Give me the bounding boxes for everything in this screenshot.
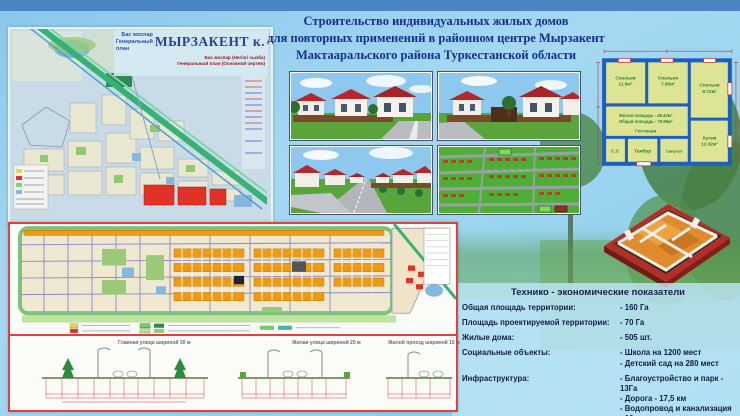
room-bedroom2-area: 7.95м² — [661, 82, 676, 87]
indicator-label: Социальные объекты: — [462, 348, 620, 368]
master-plan-panel: Бас жоспар Генеральный план МЫРЗАКЕНТ к.… — [8, 27, 273, 227]
road-cross-sections: Главная улица шириной 30 м Жилая улица ш… — [10, 334, 456, 410]
indicator-label: Площадь проектируемой территории: — [462, 318, 620, 328]
house-3d-view — [596, 184, 738, 290]
detail-plan-image — [10, 224, 456, 334]
indicator-label: Жилые дома: — [462, 333, 620, 343]
indicator-value: - 160 Га — [620, 303, 649, 313]
indicator-label: Инфраструктура: — [462, 374, 620, 416]
poster-title-line2: для повторных применений в районном цент… — [266, 30, 606, 47]
indicator-row-social: Социальные объекты: - Школа на 1200 мест… — [462, 348, 734, 368]
floor-plan: Спальня 11.6м² Спальня 7.95м² Спальня 9.… — [596, 46, 740, 170]
indicator-value: - Детский сад на 280 мест — [620, 359, 719, 369]
indicator-value: - 505 шт. — [620, 333, 652, 343]
poster-title: Строительство индивидуальных жилых домов… — [266, 13, 606, 64]
room-bedroom3-label: Спальня — [700, 83, 720, 88]
map-label-ru: Генеральный план — [116, 39, 153, 53]
top-border-strip — [0, 0, 740, 11]
map-label-kk: Бас жоспар — [121, 32, 152, 39]
room-bedroom1-area: 11.6м² — [619, 82, 633, 87]
section3-title: Жилой проезд шириной 15 м — [388, 340, 460, 346]
room-kitchen-area: 12.32м² — [701, 142, 718, 147]
section2-title: Жилая улица шириной 20 м — [292, 340, 361, 346]
living-area-text: Жилая площадь - 48.43м² — [618, 113, 673, 118]
poster-title-line1: Строительство индивидуальных жилых домов — [266, 13, 606, 30]
cross-sections-image — [10, 336, 456, 410]
render-street-view-1-image — [291, 73, 431, 139]
indicator-row-houses: Жилые дома: - 505 шт. — [462, 333, 734, 343]
indicator-value: - Водопровод и канализация - 10 км — [620, 404, 734, 416]
detail-plan-drawing — [10, 224, 456, 334]
indicator-value: - Дорога - 17,5 км — [620, 394, 734, 404]
room-wc-label: С.У. — [611, 149, 619, 154]
room-bath-label: Санузел — [666, 149, 683, 154]
indicator-row-infrastructure: Инфраструктура: - Благоустройство и парк… — [462, 374, 734, 416]
render-perspective-street — [289, 145, 433, 215]
render-gallery — [289, 71, 581, 213]
indicators-panel: Технико - экономические показатели Общая… — [452, 283, 740, 416]
indicator-value: - Школа на 1200 мест — [620, 348, 719, 358]
section1-title: Главная улица шириной 30 м — [118, 340, 191, 346]
detail-plan-sheet: Главная улица шириной 30 м Жилая улица ш… — [8, 222, 458, 412]
room-kitchen-label: Кухня — [703, 135, 717, 140]
room-bedroom2-label: Спальня — [658, 76, 678, 81]
indicator-row-design-area: Площадь проектируемой территории: - 70 Г… — [462, 318, 734, 328]
render-street-view-1 — [289, 71, 433, 141]
poster-title-line3: Мактааральского района Туркестанской обл… — [266, 47, 606, 64]
room-living-label: Гостиная — [635, 128, 656, 133]
render-perspective-street-image — [291, 147, 431, 213]
indicator-value: - 70 Га — [620, 318, 644, 328]
total-area-text: Общая площадь - 79.96м² — [619, 119, 673, 124]
town-name: МЫРЗАКЕНТ к. — [155, 34, 265, 50]
room-bedroom1-label: Спальня — [615, 76, 635, 81]
billboard: Бас жоспар Генеральный план МЫРЗАКЕНТ к.… — [0, 0, 740, 416]
map-title-block: Бас жоспар Генеральный план МЫРЗАКЕНТ к.… — [114, 30, 268, 76]
room-bedroom3-area: 9.72м² — [703, 89, 718, 94]
indicator-row-total-area: Общая площадь территории: - 160 Га — [462, 303, 734, 313]
indicator-label: Общая площадь территории: — [462, 303, 620, 313]
room-hall-label: Тамбур — [634, 148, 651, 154]
indicator-value: - Благоустройство и парк - 13Га — [620, 374, 734, 394]
map-subtitle-ru: Генеральный план (Основной чертеж) — [117, 61, 265, 68]
indicators-heading: Технико - экономические показатели — [462, 287, 734, 298]
render-street-view-2-image — [439, 73, 579, 139]
render-aerial-view-image — [439, 147, 579, 213]
render-aerial-view — [437, 145, 581, 215]
render-street-view-2 — [437, 71, 581, 141]
